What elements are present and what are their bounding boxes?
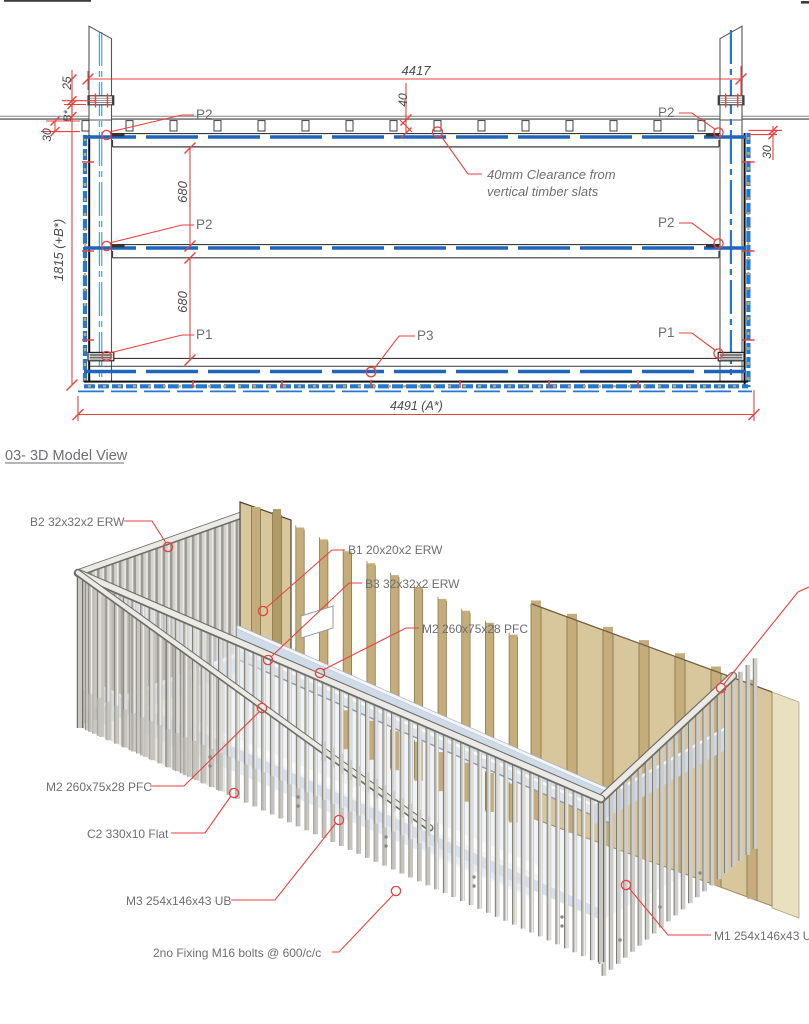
svg-text:30: 30 <box>760 145 774 159</box>
svg-text:P1: P1 <box>658 325 675 340</box>
svg-text:2no Fixing M16 bolts @ 600/c/c: 2no Fixing M16 bolts @ 600/c/c <box>153 946 321 960</box>
svg-text:P3: P3 <box>417 328 434 343</box>
svg-text:4417: 4417 <box>402 63 432 78</box>
svg-text:P1: P1 <box>196 327 213 342</box>
svg-text:40mm Clearance from: 40mm Clearance from <box>487 167 616 182</box>
svg-text:680: 680 <box>175 180 190 202</box>
svg-text:30: 30 <box>40 128 54 142</box>
svg-text:M1 254x146x43 UB: M1 254x146x43 UB <box>714 929 809 943</box>
svg-text:P2: P2 <box>658 105 675 120</box>
svg-text:B3 32x32x2 ERW: B3 32x32x2 ERW <box>365 577 460 591</box>
svg-text:1815 (+B*): 1815 (+B*) <box>51 219 66 282</box>
svg-text:B2 32x32x2 ERW: B2 32x32x2 ERW <box>30 515 125 529</box>
svg-text:M2 260x75x28 PFC: M2 260x75x28 PFC <box>46 780 152 794</box>
svg-text:P2: P2 <box>196 217 213 232</box>
svg-text:B1 20x20x2 ERW: B1 20x20x2 ERW <box>348 543 443 557</box>
svg-text:M3 254x146x43 UB: M3 254x146x43 UB <box>126 894 231 908</box>
svg-text:40: 40 <box>396 93 410 107</box>
svg-text:680: 680 <box>175 290 190 312</box>
svg-text:4491 (A*): 4491 (A*) <box>390 399 443 413</box>
svg-text:vertical timber slats: vertical timber slats <box>487 184 599 199</box>
svg-text:C2 330x10 Flat: C2 330x10 Flat <box>87 827 169 841</box>
svg-text:P2: P2 <box>658 215 675 230</box>
svg-text:25: 25 <box>60 76 74 91</box>
svg-text:P2: P2 <box>196 107 213 122</box>
svg-text:03- 3D Model View: 03- 3D Model View <box>5 448 128 464</box>
svg-text:M2 260x75x28 PFC: M2 260x75x28 PFC <box>422 622 528 636</box>
